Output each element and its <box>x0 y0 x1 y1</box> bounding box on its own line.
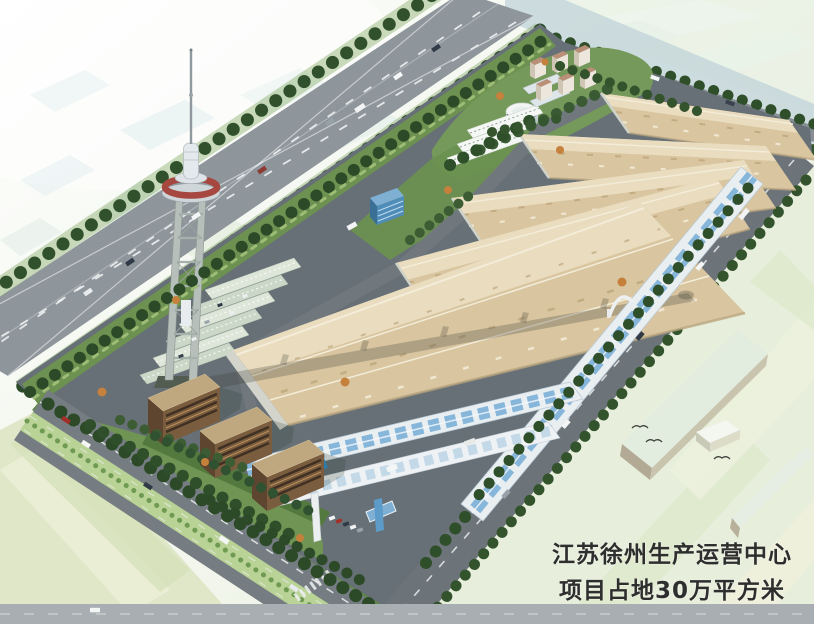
caption: 江苏徐州生产运营中心 项目占地30万平方米 <box>552 537 792 609</box>
aerial-rendering <box>0 0 814 624</box>
rendering-canvas: 江苏徐州生产运营中心 项目占地30万平方米 <box>0 0 814 624</box>
caption-line-2: 项目占地30万平方米 <box>552 573 792 609</box>
caption-line-1: 江苏徐州生产运营中心 <box>552 537 792 573</box>
